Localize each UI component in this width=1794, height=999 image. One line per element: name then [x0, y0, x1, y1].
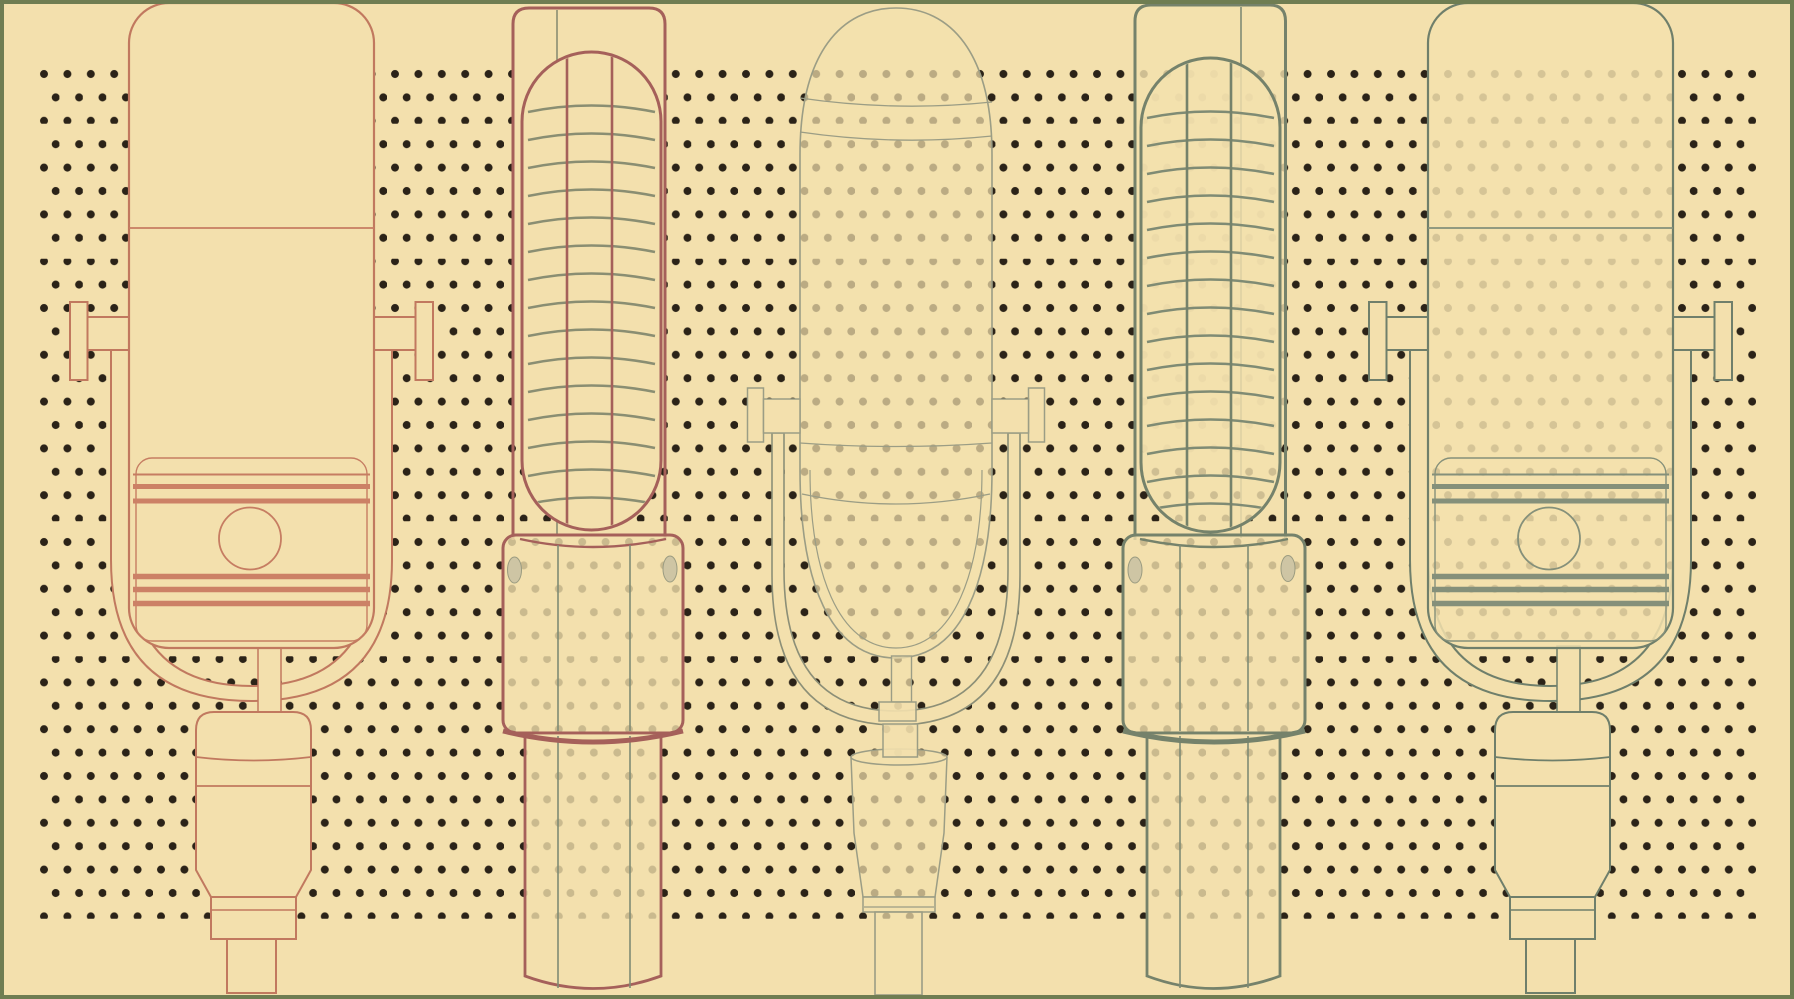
microphone-5-studio-sage-part: [1715, 302, 1733, 380]
microphone-4-ribbon-sage-part: [1123, 535, 1305, 733]
microphone-2-ribbon-maroon-part: [503, 535, 683, 733]
microphone-3-capsule-gray-part: [879, 702, 916, 721]
microphone-3-capsule-gray-part: [764, 399, 801, 433]
microphone-4-ribbon-sage-part: [1147, 733, 1280, 989]
microphone-2-ribbon-maroon-part: [525, 733, 661, 989]
microphone-1-studio-salmon-part: [416, 302, 434, 380]
microphone-poster-illustration: [0, 0, 1794, 999]
microphone-4-ribbon-sage-part: [1141, 58, 1280, 532]
microphone-5-studio-sage-part: [1369, 302, 1387, 380]
microphone-1-studio-salmon-part: [211, 897, 296, 939]
microphone-3-capsule-gray-part: [875, 912, 922, 995]
microphone-3-capsule-gray-part: [992, 399, 1029, 433]
microphone-3-capsule-gray-part: [883, 724, 918, 757]
microphone-3-capsule-gray-part: [851, 757, 947, 897]
microphone-2-ribbon-maroon-part: [663, 556, 677, 582]
microphone-3-capsule-gray-part: [1029, 388, 1045, 442]
microphone-1-studio-salmon-part: [88, 317, 130, 350]
microphone-1-studio-salmon-part: [196, 712, 311, 897]
microphone-5-studio-sage-part: [1673, 317, 1715, 350]
microphone-3-capsule-gray-part: [863, 897, 935, 912]
microphone-2-ribbon-maroon-part: [508, 557, 522, 583]
microphone-5-studio-sage-part: [1495, 712, 1610, 897]
microphone-5-studio-sage-part: [1526, 939, 1575, 993]
microphone-5-studio-sage-part: [1510, 897, 1595, 939]
microphone-5-studio-sage-part: [1428, 3, 1673, 648]
microphone-1-studio-salmon-part: [258, 646, 281, 714]
microphone-2-ribbon-maroon-part: [522, 52, 661, 530]
microphone-4-ribbon-sage-part: [1128, 557, 1142, 583]
microphone-4-ribbon-sage-part: [1281, 556, 1295, 582]
microphone-3-capsule-gray-part: [748, 388, 764, 442]
microphone-poster: [0, 0, 1794, 999]
microphone-1-studio-salmon-part: [70, 302, 88, 380]
microphone-5-studio-sage-part: [1557, 646, 1580, 714]
microphone-1-studio-salmon-part: [227, 939, 276, 993]
microphone-5-studio-sage-part: [1387, 317, 1429, 350]
microphone-3-capsule-gray-part: [892, 656, 912, 702]
microphone-1-studio-salmon-part: [374, 317, 416, 350]
microphone-1-studio-salmon-part: [129, 3, 374, 648]
